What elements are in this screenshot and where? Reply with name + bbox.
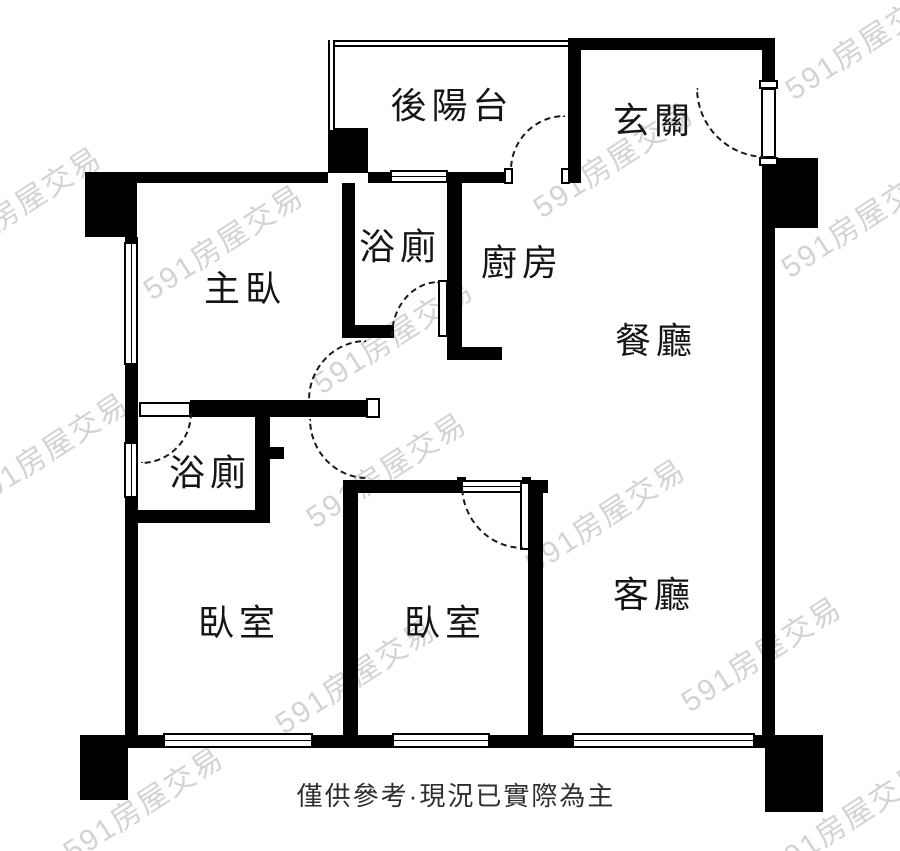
room-label-living-room: 客廳 bbox=[610, 574, 698, 615]
room-label-master-bedroom: 主臥 bbox=[198, 268, 292, 309]
wall-left-2 bbox=[125, 363, 138, 443]
wall-bathroom-upper-left bbox=[342, 183, 355, 333]
pillar-bottom-left bbox=[80, 735, 128, 800]
pillar-bottom-right bbox=[765, 735, 823, 812]
wall-bathroom-upper-bottom bbox=[342, 325, 394, 338]
room-label-bedroom-middle: 臥室 bbox=[398, 602, 492, 643]
hall-door-post-cap bbox=[366, 398, 380, 418]
wall-bedroom-middle-right bbox=[528, 480, 543, 737]
wall-kitchen-lip bbox=[447, 347, 502, 360]
balcony-outer-wall-top bbox=[328, 40, 570, 47]
wall-bedroom-middle-top-west bbox=[343, 480, 462, 493]
bottom-window-middle bbox=[392, 733, 490, 748]
pillar-balcony bbox=[328, 128, 368, 173]
wall-right-lower bbox=[762, 164, 775, 735]
left-window-master bbox=[124, 242, 138, 365]
room-label-entrance: 玄關 bbox=[610, 100, 698, 141]
wall-bedroom-divider bbox=[343, 480, 358, 737]
left-window-bathroom bbox=[124, 442, 138, 498]
hall-door-arc-lower bbox=[309, 419, 367, 479]
balcony-door-jamb-left bbox=[504, 168, 513, 184]
balcony-window bbox=[390, 170, 448, 183]
bathroom-upper-door-arc bbox=[391, 281, 439, 336]
room-label-bathroom-lower: 浴廁 bbox=[164, 452, 256, 493]
room-label-rear-balcony: 後陽台 bbox=[390, 85, 514, 126]
wall-kitchen-vertical bbox=[447, 172, 462, 360]
room-label-kitchen: 廚房 bbox=[478, 242, 566, 283]
bedroom-middle-door-arc bbox=[461, 485, 523, 549]
entry-door-arc bbox=[696, 88, 766, 158]
room-label-bathroom-upper: 浴廁 bbox=[356, 226, 444, 267]
wall-bathroom-lower-bottom bbox=[125, 510, 270, 523]
watermark: 591房屋交易 bbox=[0, 379, 136, 516]
wall-left-3 bbox=[125, 496, 138, 735]
room-label-bedroom-left: 臥室 bbox=[192, 602, 286, 643]
wall-bottom-1 bbox=[125, 735, 165, 748]
wall-bathroom-lower-nub bbox=[270, 447, 284, 459]
balcony-door-arc bbox=[510, 115, 565, 170]
wall-top-west bbox=[85, 172, 328, 183]
bottom-window-right bbox=[572, 733, 755, 748]
hall-door-arc-upper bbox=[308, 340, 366, 400]
wall-master-bottom bbox=[190, 400, 368, 417]
room-label-dining-room: 餐廳 bbox=[612, 320, 700, 361]
wall-balcony-bottom-a bbox=[368, 172, 392, 183]
floor-plan: 591房屋交易 591房屋交易 591房屋交易 591房屋交易 591房屋交易 … bbox=[0, 0, 900, 851]
watermark: 591房屋交易 bbox=[775, 0, 900, 109]
balcony-outer-wall-left bbox=[328, 40, 335, 130]
wall-divider-balcony-entry bbox=[568, 38, 581, 183]
bottom-window-left bbox=[163, 733, 313, 748]
wall-top-east bbox=[568, 38, 775, 50]
wall-bottom-4 bbox=[755, 735, 767, 748]
bathroom-upper-door-leaf bbox=[438, 280, 448, 337]
wall-bathroom-lower-right bbox=[255, 417, 270, 523]
disclaimer-caption: 僅供參考·現況已實際為主 bbox=[296, 776, 616, 813]
